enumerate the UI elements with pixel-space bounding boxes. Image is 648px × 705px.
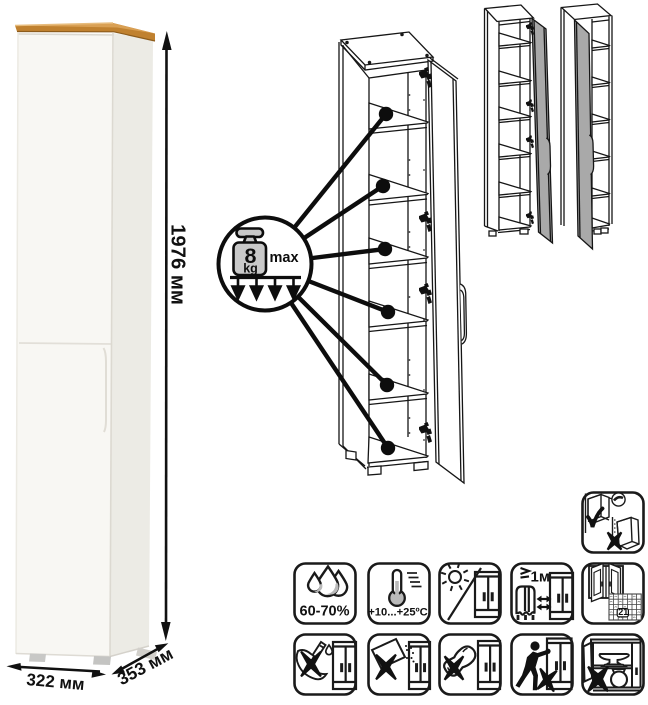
svg-text:60-70%: 60-70% — [300, 604, 350, 620]
svg-text:21: 21 — [618, 607, 628, 617]
svg-text:kg: kg — [243, 262, 258, 276]
svg-text:+10...+25ºС: +10...+25ºС — [368, 607, 427, 619]
svg-text:max: max — [269, 250, 298, 266]
svg-text:1м: 1м — [531, 569, 550, 586]
svg-text:1976 мм: 1976 мм — [167, 224, 189, 305]
